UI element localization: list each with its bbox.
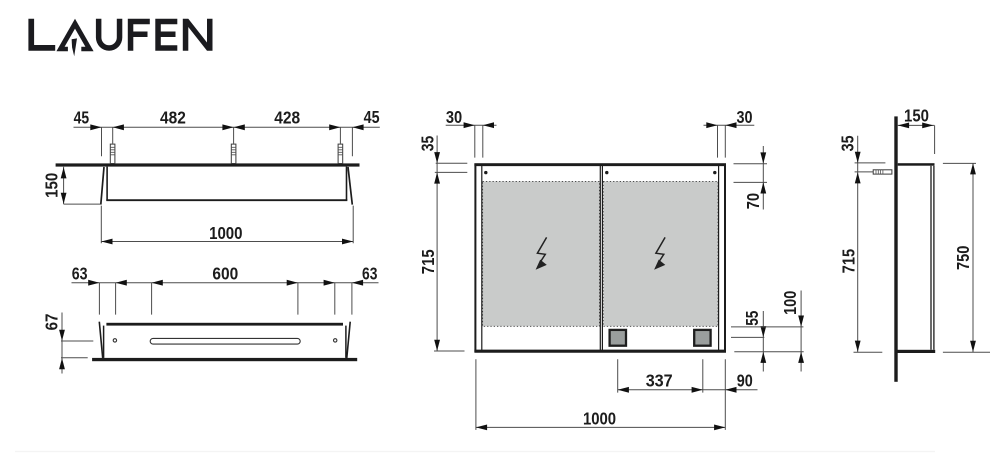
- svg-text:150: 150: [904, 105, 929, 125]
- svg-text:35: 35: [838, 135, 858, 151]
- svg-text:45: 45: [74, 107, 90, 127]
- svg-text:1000: 1000: [209, 223, 242, 243]
- svg-text:90: 90: [737, 371, 753, 391]
- svg-text:600: 600: [212, 264, 238, 284]
- svg-text:428: 428: [274, 107, 300, 127]
- svg-text:63: 63: [362, 263, 377, 283]
- svg-text:337: 337: [646, 371, 673, 391]
- svg-text:30: 30: [737, 107, 753, 127]
- svg-text:63: 63: [72, 263, 88, 283]
- svg-text:482: 482: [160, 107, 186, 127]
- svg-text:70: 70: [743, 193, 763, 209]
- svg-text:150: 150: [42, 173, 62, 198]
- svg-text:30: 30: [446, 107, 462, 127]
- svg-text:715: 715: [838, 248, 858, 273]
- svg-text:67: 67: [42, 314, 62, 331]
- svg-text:750: 750: [953, 246, 973, 271]
- svg-text:100: 100: [780, 291, 800, 315]
- svg-text:715: 715: [418, 249, 438, 274]
- svg-text:45: 45: [364, 107, 380, 127]
- svg-text:55: 55: [742, 310, 762, 326]
- svg-text:1000: 1000: [583, 409, 616, 429]
- svg-text:35: 35: [418, 135, 438, 151]
